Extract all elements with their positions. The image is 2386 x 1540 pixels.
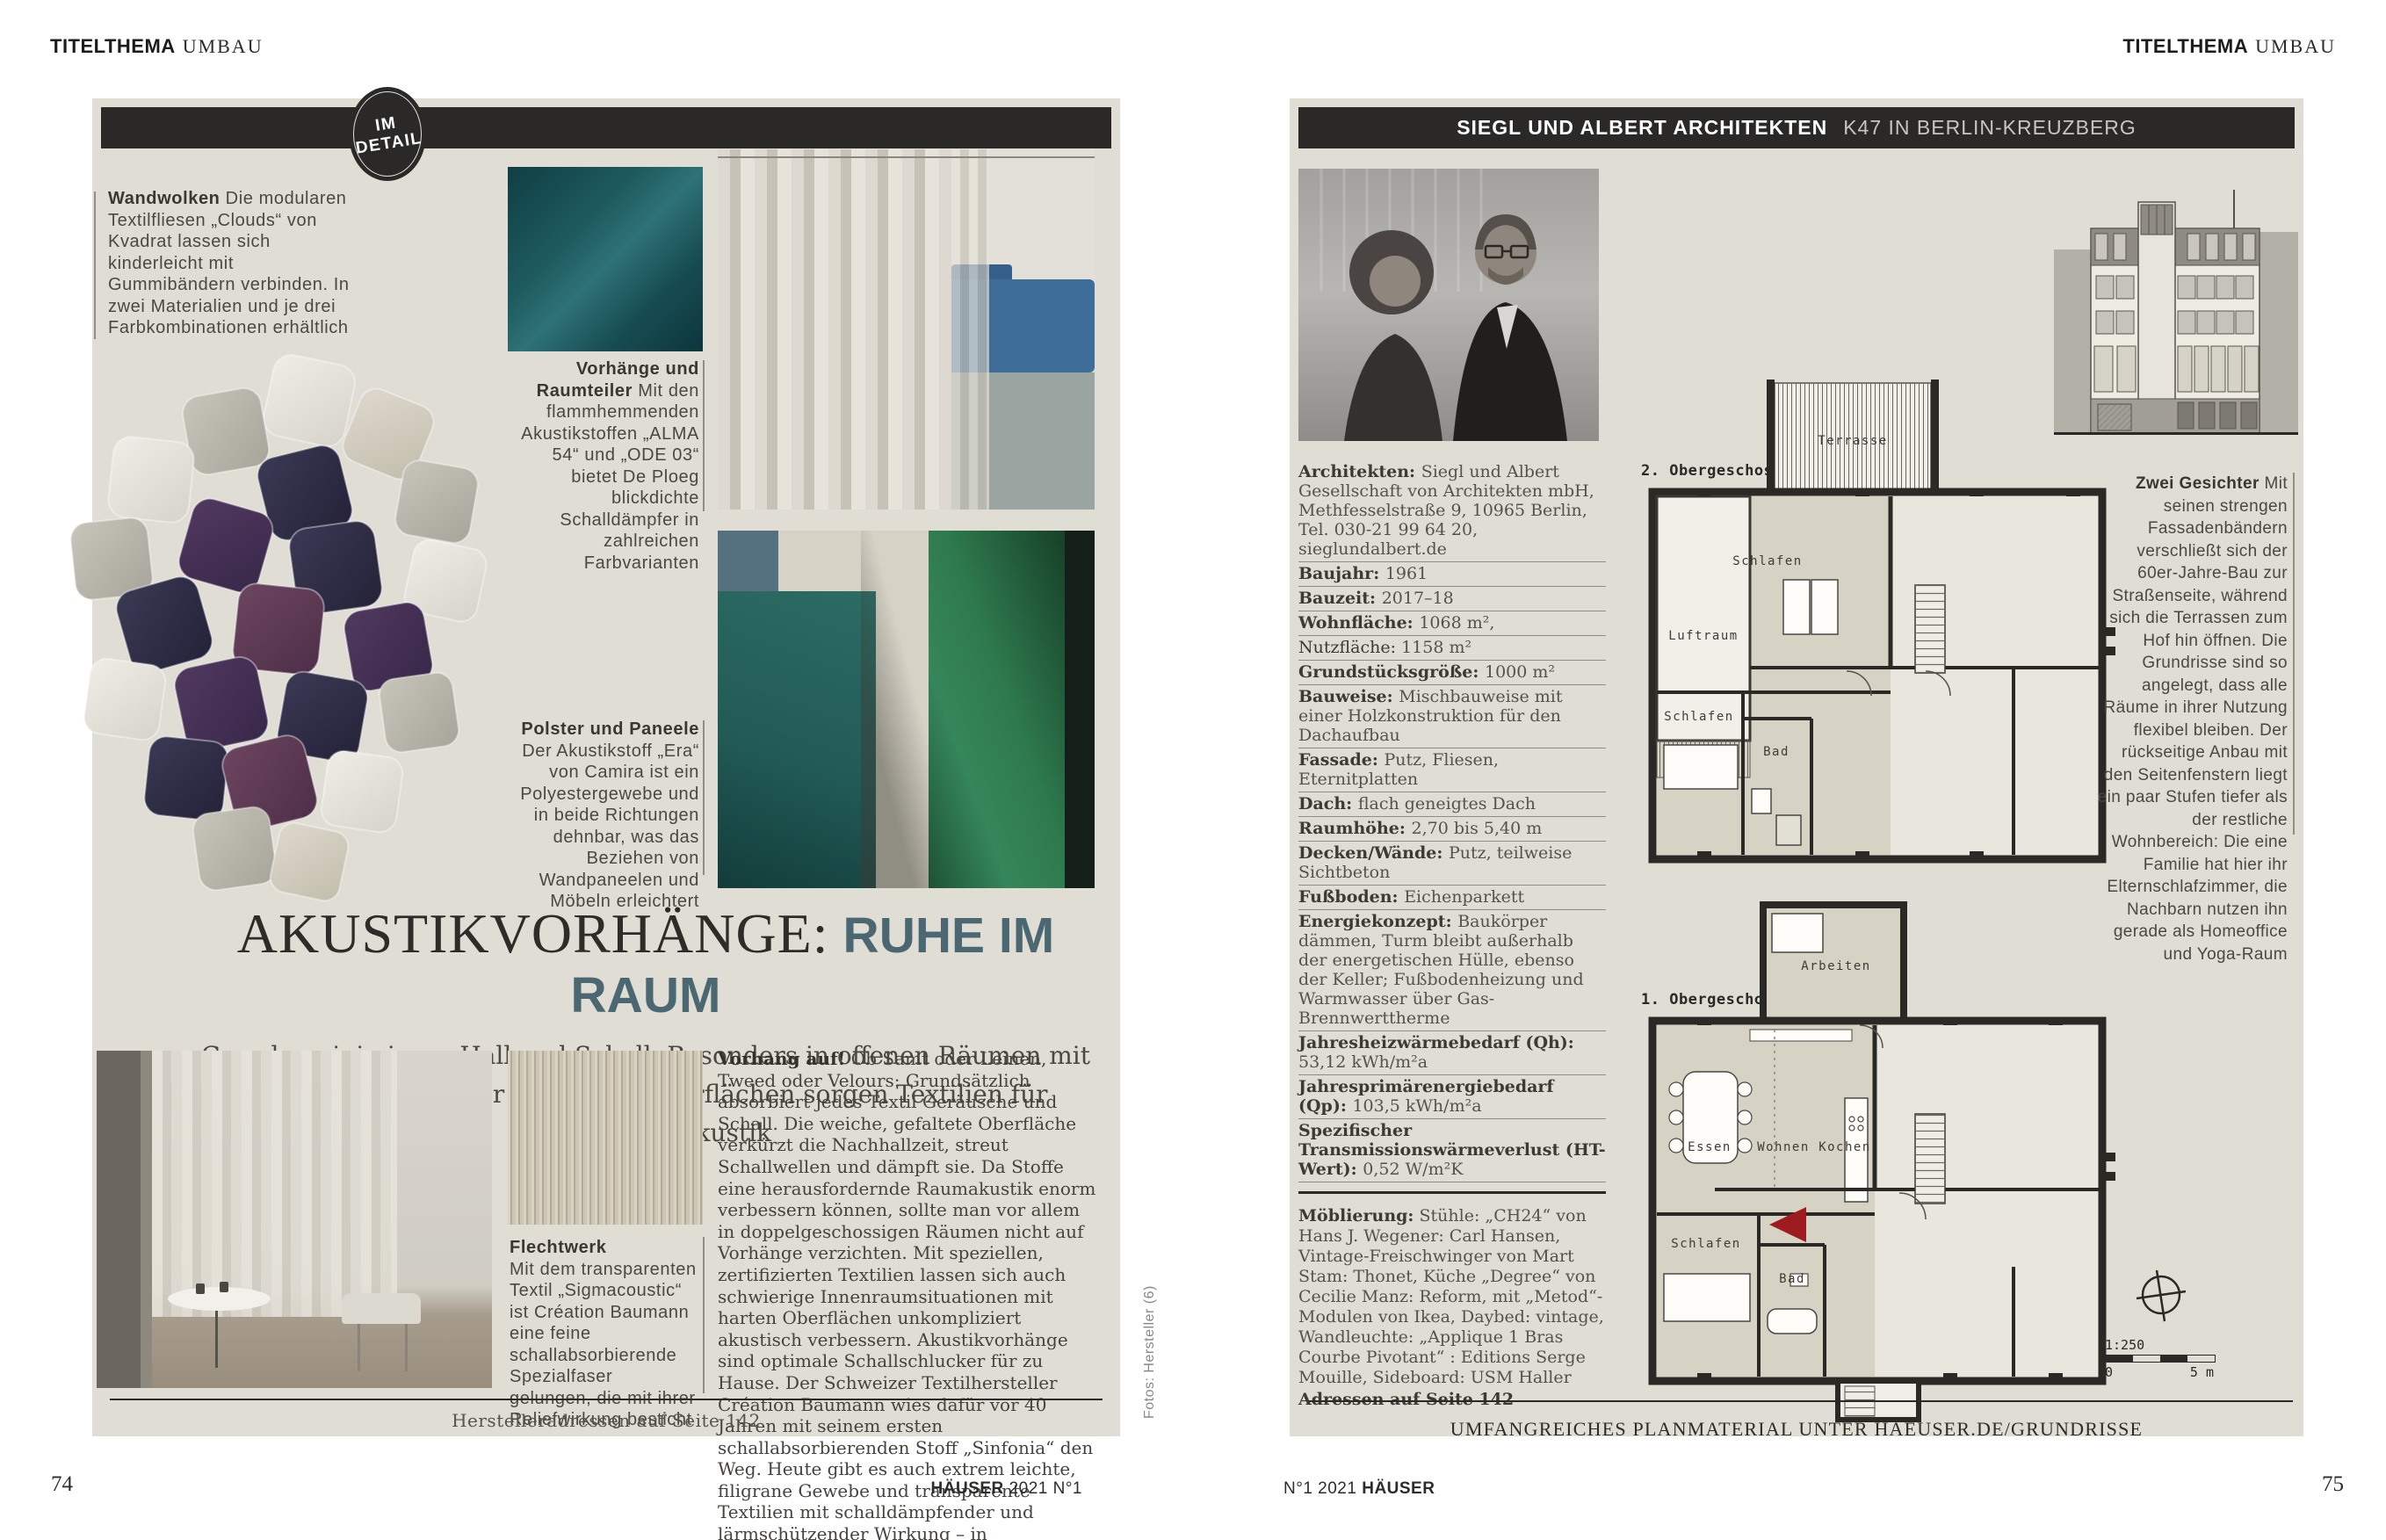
spec-row: Fassade: Putz, Fliesen, Eternitplatten [1298,748,1606,792]
caption-text: Der Akustikstoff „Era“ von Camira ist ei… [520,741,699,912]
room-label-luftraum: Luftraum [1668,629,1738,643]
left-bottom-rule [110,1399,1103,1400]
photo-chair [342,1293,421,1324]
room-label-schlafen: Schlafen [1732,554,1802,568]
spec-row: Dach: flach geneigtes Dach [1298,792,1606,817]
interior-curtain-photo [97,1051,492,1388]
caption-rule-wandwolken [94,192,96,339]
caption-rule-vorhaenge [703,360,705,511]
headline-serif: AKUSTIKVORHÄNGE: [237,902,829,965]
photo-green-panel [929,531,1064,888]
furnishing-paragraph: Möblierung: Stühle: „CH24“ von Hans J. W… [1298,1206,1606,1410]
caption-rule-polster [703,720,705,875]
caption-flechtwerk: Flechtwerk Mit dem transparenten Textil … [510,1237,699,1431]
caption-lead: Flechtwerk [510,1237,699,1259]
spec-row: Nutzfläche: 1158 m² [1298,636,1606,661]
spec-divider [1298,1191,1606,1194]
spec-row: Baujahr: 1961 [1298,562,1606,587]
room-label-arbeiten: Arbeiten [1801,959,1870,973]
spec-row: Jahresprimärenergiebedarf (Qp): 103,5 kW… [1298,1075,1606,1119]
right-footer-note: UMFANGREICHES PLANMATERIAL UNTER HAEUSER… [1290,1418,2303,1441]
kicker-bold: TITELTHEMA [50,35,176,57]
project-spec-column: Architekten: Siegl und Albert Gesellscha… [1298,460,1606,1410]
spec-row: Raumhöhe: 2,70 bis 5,40 m [1298,817,1606,842]
kicker-bold: TITELTHEMA [2122,35,2248,57]
spec-row: Jahresheizwärmebedarf (Qh): 53,12 kWh/m²… [1298,1031,1606,1075]
magazine-spread: TITELTHEMAUMBAU IM DETAIL Wandwolken Die… [0,0,2386,1540]
column-text: Mit seinen strengen Fassadenbändern vers… [2098,474,2288,964]
kicker-right: TITELTHEMAUMBAU [2122,35,2336,58]
folio-left: HÄUSER 2021 N°1 [791,1479,1082,1499]
page-number-left: 74 [51,1472,73,1497]
photo-cup [220,1282,228,1292]
photo-sheer-curtain [152,1051,397,1317]
spec-row: Spezifischer Transmissionswärmeverlust (… [1298,1119,1606,1182]
caption-rule-flechtwerk [703,1237,705,1393]
textile-tiles [69,351,489,903]
room-label-schlafen: Schlafen [1671,1237,1740,1251]
right-header-bar: SIEGL UND ALBERT ARCHITEKTENK47 IN BERLI… [1298,107,2295,148]
caption-lead: Polster und Paneele [521,719,699,739]
article-body: Vorhang auf! Ob Samt oder Leinen, Tweed … [718,1048,1097,1540]
room-label-kochen: Kochen [1818,1140,1871,1154]
scale-ratio: 1:250 [2105,1337,2144,1353]
right-bottom-rule [1309,1400,2293,1402]
photo-chair-leg [405,1320,408,1371]
photo-dark-panel [1065,531,1095,888]
photo-teal-panel [718,591,876,888]
north-compass-icon [2135,1269,2187,1323]
caption-text: Mit dem transparenten Textil „Sigmacoust… [510,1260,697,1430]
scale-bar [2105,1355,2216,1363]
folio-right: N°1 2021 HÄUSER [1283,1479,1435,1499]
photo-chair-leg [358,1320,360,1371]
photo-window-frame [97,1051,141,1388]
room-label-schlafen: Schlafen [1664,710,1733,724]
project-header: SIEGL UND ALBERT ARCHITEKTENK47 IN BERLI… [1298,107,2295,148]
page-number-right: 75 [2300,1472,2344,1497]
spec-row: Energiekonzept: Baukörper dämmen, Turm b… [1298,910,1606,1031]
spec-row: Architekten: Siegl und Albert Gesellscha… [1298,460,1606,562]
photo-table-leg [215,1307,218,1368]
body-lead: Vorhang auf! [718,1048,845,1069]
left-header-bar [101,107,1111,148]
photo-credit: Fotos: Hersteller (6) [1142,1247,1158,1419]
spec-row: Decken/Wände: Putz, teilweise Sichtbeton [1298,842,1606,886]
im-detail-badge-label: IM DETAIL [351,110,423,158]
acoustic-panels-photo [718,531,1095,888]
textile-collage-photo [46,348,498,910]
photo-drape [718,149,951,510]
floor-plan-2og: Terrasse Luftraum [1636,376,2117,894]
caption-vorhaenge: Vorhänge und Raumteiler Mit den flammhem… [511,358,699,574]
scale-max: 5 m [2170,1364,2214,1380]
photo-curtain-rail [718,156,1095,158]
spec-row: Fußboden: Eichenparkett [1298,886,1606,910]
architects-portrait-photo [1298,169,1599,441]
caption-wandwolken: Wandwolken Die modularen Textilfliesen „… [108,188,356,339]
room-label-essen: Essen [1688,1140,1732,1154]
room-label-terrasse: Terrasse [1818,434,1887,448]
scale-zero: 0 [2105,1364,2113,1380]
spec-list: Architekten: Siegl und Albert Gesellscha… [1298,460,1606,1182]
room-label-wohnen: Wohnen [1757,1140,1810,1154]
spec-row: Bauzeit: 2017–18 [1298,587,1606,611]
kicker-left: TITELTHEMAUMBAU [50,35,264,58]
caption-polster: Polster und Paneele Der Akustikstoff „Er… [511,719,699,913]
woven-fabric-photo [508,1051,703,1225]
photo-blue-panel [718,531,778,591]
left-footer-note: Herstelleradressen auf Seite 142 [92,1410,1120,1431]
project-side-column: Zwei Gesichter Mit seinen strengen Fassa… [2093,473,2288,965]
curtain-room-photo [718,149,1095,510]
kicker-light: UMBAU [2255,35,2336,57]
column-lead: Zwei Gesichter [2136,474,2259,493]
room-label-bad: Bad [1779,1272,1805,1286]
caption-text: Die modularen Textilfliesen „Clouds“ von… [108,189,350,337]
article-headline: AKUSTIKVORHÄNGE:RUHE IM RAUM [198,901,1094,1024]
column-rule [2293,473,2295,835]
im-detail-badge: IM DETAIL [349,87,426,181]
furnishing-label: Möblierung: [1298,1206,1414,1225]
floor-plan-1og: Arbeiten [1636,898,2117,1425]
furnishing-text: Stühle: „CH24“ von Hans J. Wegener: Carl… [1298,1206,1604,1387]
photo-cup [196,1283,205,1294]
photo-drape-sheer [951,149,989,510]
photo-window-frame-inner [141,1051,153,1388]
kicker-light: UMBAU [183,35,264,57]
spec-row: Wohnfläche: 1068 m², [1298,611,1606,636]
teal-fabric-photo [508,167,703,351]
spec-row: Grundstücksgröße: 1000 m² [1298,661,1606,685]
caption-text: Mit den flammhemmenden Akustikstoffen „A… [521,381,699,573]
spec-row: Bauweise: Mischbauweise mit einer Holzko… [1298,685,1606,748]
caption-lead: Wandwolken [108,189,220,208]
body-text: Ob Samt oder Leinen, Tweed oder Velours:… [718,1048,1095,1540]
room-label-bad: Bad [1763,745,1789,759]
